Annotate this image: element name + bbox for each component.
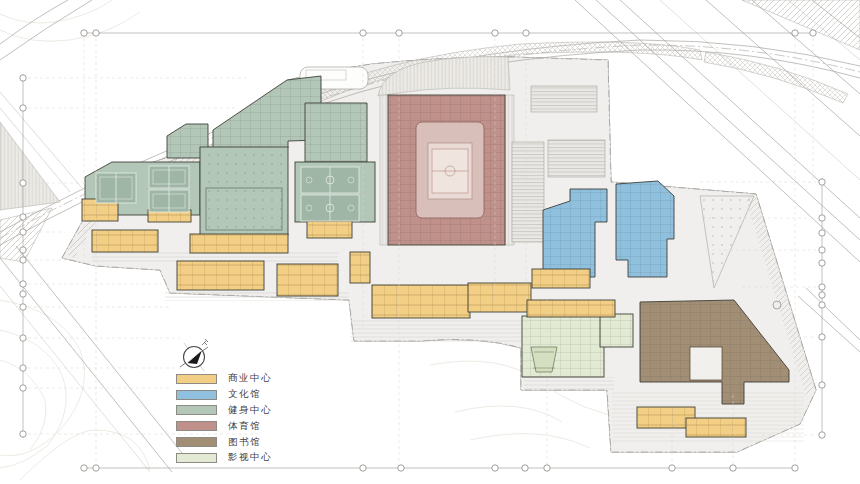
commercial-strip-6-texture xyxy=(277,264,338,296)
grid-axis-marker xyxy=(819,215,825,221)
legend-item-library: 图书馆 xyxy=(176,434,272,450)
legend-label-fitness: 健身中心 xyxy=(228,404,272,417)
commercial-strip-3-texture xyxy=(92,230,158,252)
grid-axis-marker xyxy=(492,465,498,471)
fitness-northeast-block-texture xyxy=(305,103,367,162)
legend-label-library: 图书馆 xyxy=(228,436,261,449)
grid-axis-marker xyxy=(819,179,825,185)
grid-axis-marker xyxy=(20,257,26,263)
grid-axis-marker xyxy=(819,382,825,388)
grid-axis-marker xyxy=(20,247,26,253)
service-structure xyxy=(531,86,597,112)
grid-axis-marker xyxy=(819,230,825,236)
grid-axis-marker xyxy=(669,465,675,471)
grid-axis-marker xyxy=(81,30,87,36)
commercial-strip-5-texture xyxy=(177,261,264,290)
grid-axis-marker xyxy=(81,465,87,471)
commercial-strip-10-texture xyxy=(468,283,531,312)
grid-axis-marker xyxy=(819,432,825,438)
grid-axis-marker xyxy=(544,465,550,471)
legend-swatch-fitness xyxy=(176,405,217,415)
grid-axis-marker xyxy=(20,335,26,341)
commercial-strip-7-texture xyxy=(307,221,352,238)
legend-label-commercial: 商业中心 xyxy=(228,372,272,385)
site-plan-drawing xyxy=(0,0,860,484)
legend-item-gym: 体育馆 xyxy=(176,418,272,434)
legend-swatch-cinema xyxy=(176,453,217,463)
grid-axis-marker xyxy=(398,465,404,471)
parking-structure-north xyxy=(548,140,605,177)
legend-swatch-culture xyxy=(176,390,217,400)
grid-axis-marker xyxy=(810,30,816,36)
commercial-strip-11-texture xyxy=(532,269,590,288)
grid-axis-marker xyxy=(20,281,26,287)
grid-axis-marker xyxy=(792,465,798,471)
north-arrow-compass xyxy=(180,339,208,371)
commercial-strip-8-texture xyxy=(350,252,370,283)
grid-axis-marker xyxy=(792,30,798,36)
grid-axis-marker xyxy=(360,30,366,36)
grid-axis-marker xyxy=(819,260,825,266)
legend-item-commercial: 商业中心 xyxy=(176,371,272,387)
grid-axis-marker xyxy=(523,30,529,36)
legend: 商业中心文化馆健身中心体育馆图书馆影视中心 xyxy=(176,371,272,466)
legend-swatch-gym xyxy=(176,421,217,431)
commercial-strip-14-texture xyxy=(686,418,746,437)
legend-swatch-commercial xyxy=(176,374,217,384)
grid-axis-marker xyxy=(819,334,825,340)
grid-axis-marker xyxy=(20,365,26,371)
grid-axis-marker xyxy=(20,291,26,297)
grid-axis-marker xyxy=(20,75,26,81)
grid-axis-marker xyxy=(819,302,825,308)
grid-axis-marker xyxy=(819,284,825,290)
grid-axis-marker xyxy=(20,385,26,391)
library-courtyard xyxy=(690,347,722,380)
grid-axis-marker xyxy=(819,292,825,298)
grid-axis-marker xyxy=(20,105,26,111)
legend-label-gym: 体育馆 xyxy=(228,420,261,433)
grid-axis-marker xyxy=(20,180,26,186)
fitness-main-hall-texture xyxy=(200,147,288,235)
grid-axis-marker xyxy=(20,229,26,235)
grid-axis-marker xyxy=(522,465,528,471)
grid-axis-marker xyxy=(20,431,26,437)
parking-structure-east xyxy=(512,142,544,242)
legend-item-cinema: 影视中心 xyxy=(176,450,272,466)
grid-axis-marker xyxy=(396,30,402,36)
site-plan-canvas: 商业中心文化馆健身中心体育馆图书馆影视中心 xyxy=(0,0,860,484)
grid-axis-marker xyxy=(20,304,26,310)
legend-item-culture: 文化馆 xyxy=(176,387,272,403)
grid-axis-marker xyxy=(93,465,99,471)
commercial-strip-12-texture xyxy=(527,300,615,317)
cinema-annex-texture xyxy=(600,314,633,347)
commercial-strip-9-texture xyxy=(372,285,470,318)
grid-axis-marker xyxy=(93,30,99,36)
grid-axis-marker xyxy=(360,465,366,471)
grid-axis-marker xyxy=(730,465,736,471)
legend-label-culture: 文化馆 xyxy=(228,388,261,401)
grid-axis-marker xyxy=(819,247,825,253)
grid-axis-marker xyxy=(20,214,26,220)
legend-item-fitness: 健身中心 xyxy=(176,403,272,419)
grid-axis-marker xyxy=(492,30,498,36)
legend-swatch-library xyxy=(176,437,217,447)
commercial-strip-4-texture xyxy=(190,234,288,253)
legend-label-cinema: 影视中心 xyxy=(228,451,272,464)
